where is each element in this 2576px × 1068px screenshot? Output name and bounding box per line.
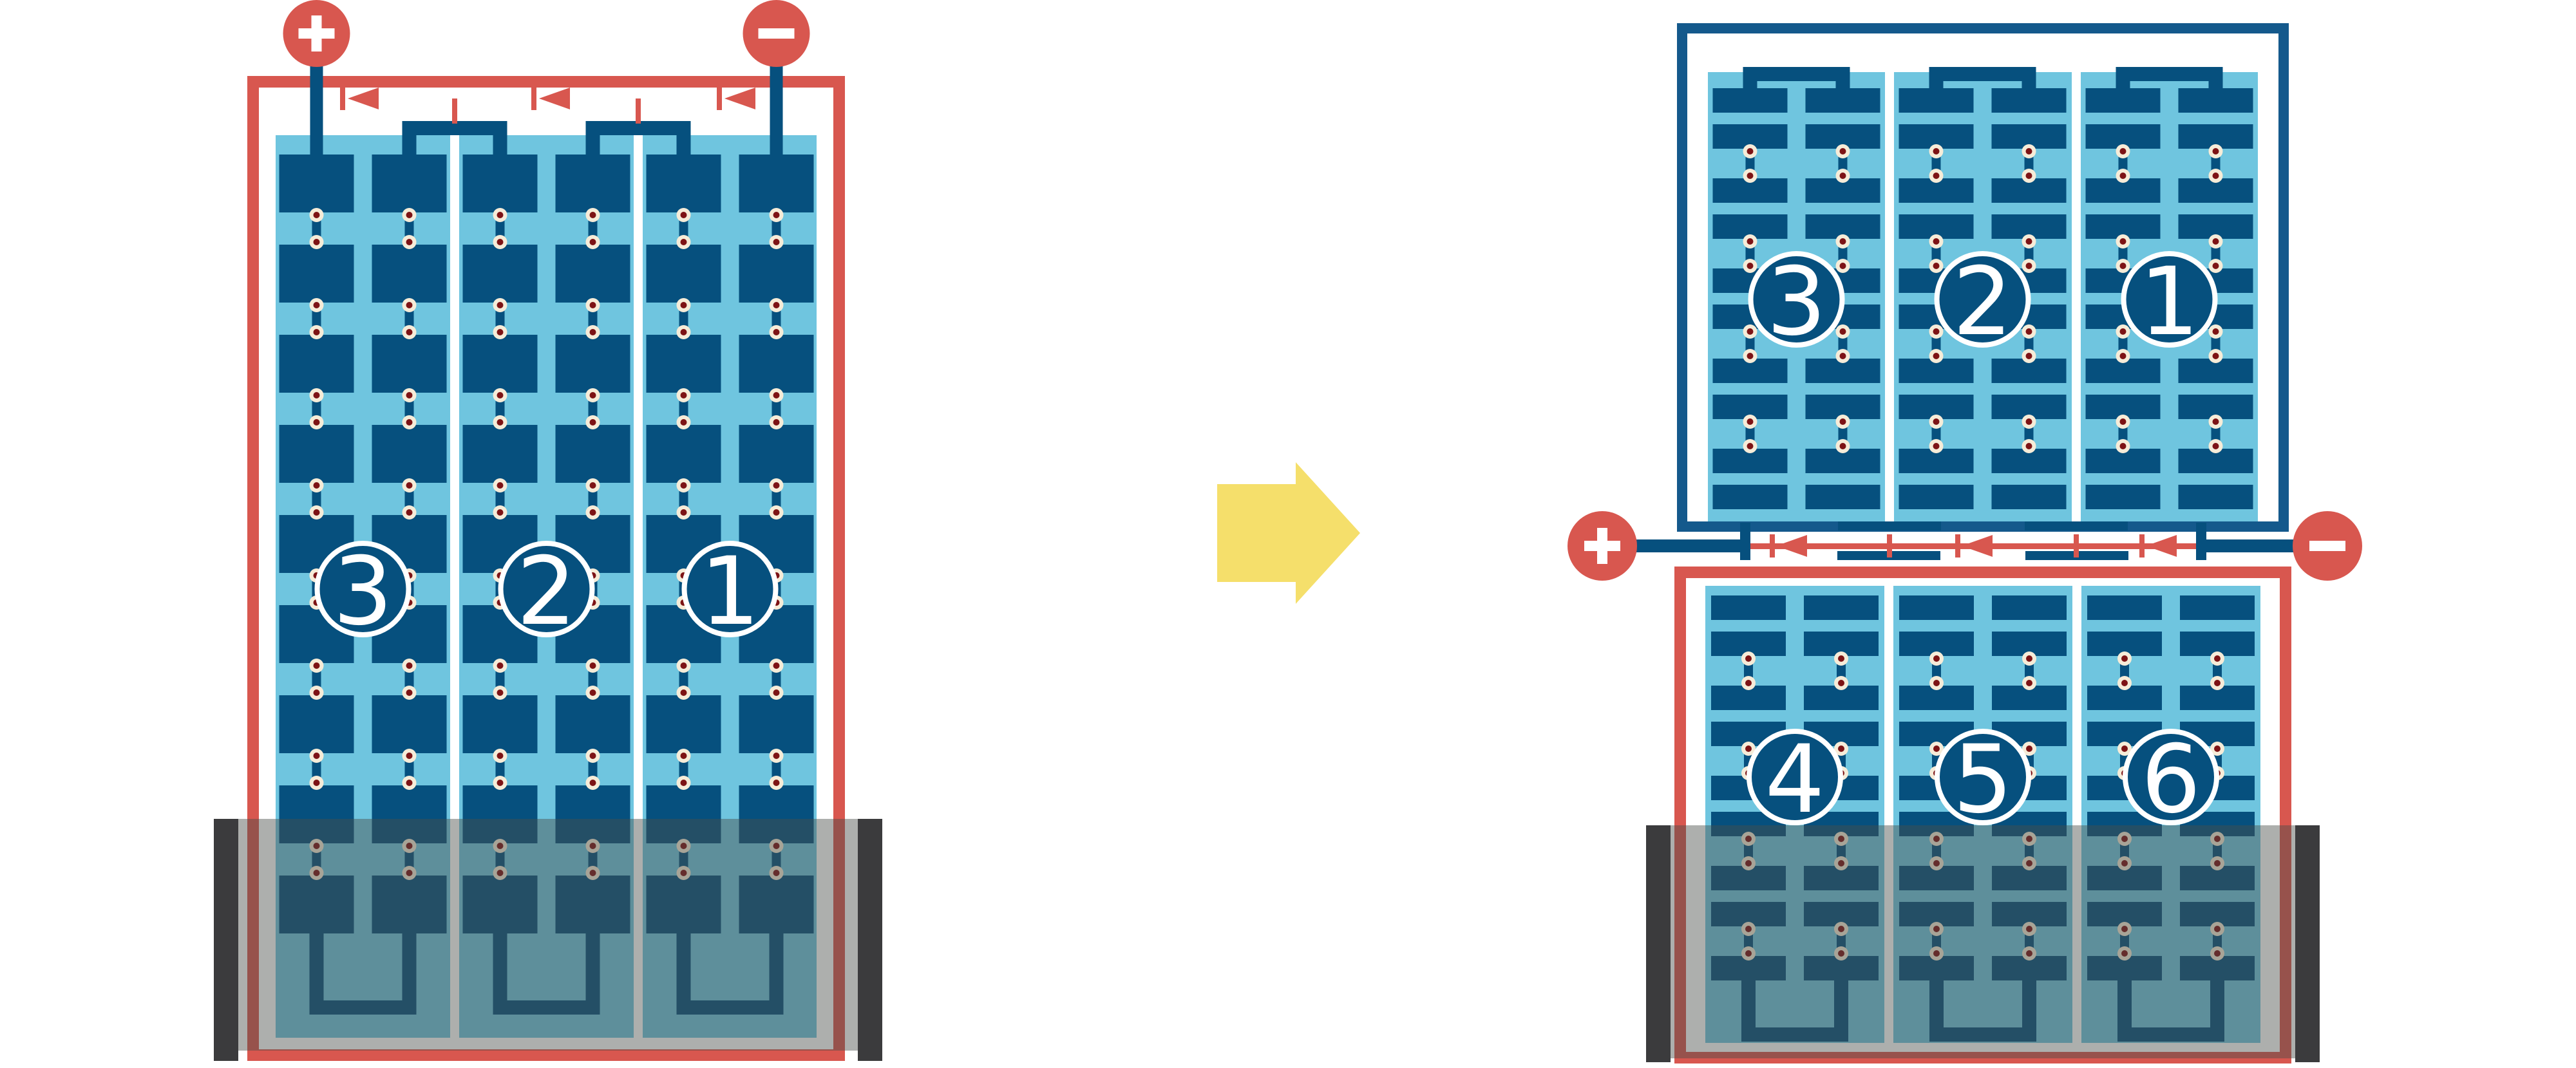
series-link-leg <box>2209 67 2223 93</box>
current-stub <box>452 98 457 124</box>
cell-connector-dot-core <box>1840 328 1846 335</box>
series-link-leg <box>586 121 600 161</box>
cell-connector-dot-core <box>1840 353 1846 359</box>
diagram-canvas: 321 321 456 <box>0 0 2576 1068</box>
cell-connector-dot-core <box>314 662 320 669</box>
pv-cell <box>739 245 814 303</box>
cell-connector-dot-core <box>1933 745 1940 752</box>
series-link-top <box>1743 67 1850 81</box>
cell-connector-dot-core <box>497 780 504 786</box>
cell-connector-dot-core <box>681 212 687 218</box>
page-background: { "palette": { "red": "#D8574F", "cell_n… <box>0 0 2576 1068</box>
pv-cell <box>372 245 447 303</box>
pv-cell <box>463 155 538 212</box>
cell-connector-dot-core <box>1933 148 1940 155</box>
pv-cell <box>556 155 630 212</box>
cell-connector-dot-core <box>2026 418 2032 425</box>
cell-connector-dot-core <box>773 239 780 245</box>
cell-connector-dot-core <box>1933 263 1940 269</box>
current-tick <box>717 87 722 110</box>
cell-connector-dot-core <box>2026 745 2032 752</box>
flood-end-bar <box>2295 825 2320 1062</box>
series-link-leg <box>1836 67 1850 93</box>
pv-cell <box>1713 485 1788 509</box>
pv-cell <box>2087 595 2162 620</box>
cell-connector-dot-core <box>1747 353 1754 359</box>
minus-icon <box>759 28 795 39</box>
flood-overlays <box>214 819 2320 1062</box>
cell-connector-dot-core <box>406 419 413 426</box>
pv-cell <box>1806 485 1880 509</box>
cell-connector-dot-core <box>497 239 504 245</box>
pv-cell <box>647 155 721 212</box>
flood-overlay <box>214 819 882 1051</box>
cell-connector-dot-core <box>497 329 504 335</box>
cell-connector-dot-core <box>2026 655 2032 662</box>
cell-connector-dot-core <box>497 392 504 398</box>
pv-cell <box>1899 485 1974 509</box>
plus-icon <box>1597 528 1607 564</box>
cell-connector-dot-core <box>1933 238 1940 245</box>
current-tick <box>531 87 536 110</box>
cell-connector-dot-core <box>406 509 413 516</box>
panel-number-4: 4 <box>1765 725 1825 834</box>
cell-connector-dot-core <box>497 662 504 669</box>
pv-cell <box>647 695 721 753</box>
cell-connector-dot-core <box>2214 680 2221 686</box>
cell-connector-dot-core <box>590 419 596 426</box>
flood-end-bar <box>1646 825 1671 1062</box>
cell-connector-dot-core <box>773 329 780 335</box>
cell-connector-dot-core <box>406 392 413 398</box>
flood-overlay <box>1646 825 2320 1058</box>
cell-connector-dot-core <box>2214 745 2221 752</box>
current-direction-arrow-icon <box>2146 535 2177 557</box>
cell-connector-dot-core <box>590 302 596 308</box>
cell-connector-dot-core <box>406 780 413 786</box>
cell-connector-dot-core <box>590 482 596 489</box>
current-direction-arrow-icon <box>1776 535 1807 557</box>
column-separator <box>2072 72 2081 521</box>
cell-connector-dot-core <box>590 392 596 398</box>
cell-connector-dot-core <box>1747 173 1754 179</box>
terminal-wire <box>1636 539 1743 552</box>
cell-connector-dot-core <box>1933 353 1940 359</box>
cell-connector-dot-core <box>590 329 596 335</box>
pv-cell <box>647 335 721 393</box>
pv-cell <box>556 335 630 393</box>
pv-cell <box>463 245 538 303</box>
column-separator <box>1885 72 1894 521</box>
current-tick <box>1887 534 1892 557</box>
cell-connector-dot-core <box>681 662 687 669</box>
cell-connector-dot-core <box>1747 418 1754 425</box>
cell-connector-dot-core <box>406 239 413 245</box>
pv-cell <box>2086 485 2161 509</box>
cell-connector-dot-core <box>314 753 320 759</box>
cell-connector-dot-core <box>314 482 320 489</box>
cell-connector-dot-core <box>1933 655 1940 662</box>
current-tick <box>340 87 345 110</box>
cell-connector-dot-core <box>497 482 504 489</box>
pv-cell <box>279 245 354 303</box>
series-link-leg <box>493 121 507 161</box>
cell-connector-dot-core <box>2026 353 2032 359</box>
pv-cell <box>2180 595 2255 620</box>
cell-connector-dot-core <box>590 212 596 218</box>
cell-connector-dot-core <box>1840 263 1846 269</box>
cell-connector-dot-core <box>773 509 780 516</box>
cell-connector-dot-core <box>1747 328 1754 335</box>
cell-connector-dot-core <box>2026 148 2032 155</box>
cell-connector-dot-core <box>497 753 504 759</box>
cell-connector-dot-core <box>2213 443 2219 449</box>
cell-connector-dot-core <box>1747 148 1754 155</box>
current-direction-arrow-icon <box>1962 535 1993 557</box>
cell-connector-dot-core <box>1933 443 1940 449</box>
cell-connector-dot-core <box>497 302 504 308</box>
pv-cell <box>372 335 447 393</box>
cell-connector-dot-core <box>406 689 413 696</box>
pv-cell <box>1804 595 1879 620</box>
pv-cell <box>372 695 447 753</box>
cell-connector-dot-core <box>1838 745 1844 752</box>
cell-connector-dot-core <box>2213 148 2219 155</box>
flood-end-bar <box>214 819 238 1061</box>
cell-connector-dot-core <box>314 419 320 426</box>
cell-connector-dot-core <box>314 780 320 786</box>
transform-arrow-icon <box>1217 462 1360 604</box>
cell-connector-dot-core <box>314 239 320 245</box>
cell-connector-dot-core <box>773 419 780 426</box>
cell-connector-dot-core <box>497 419 504 426</box>
cell-connector-dot-core <box>2026 263 2032 269</box>
pv-cell <box>739 335 814 393</box>
panel-number-5: 5 <box>1953 725 2013 834</box>
pv-cell <box>279 335 354 393</box>
cell-connector-dot-core <box>590 780 596 786</box>
cell-connector-dot-core <box>406 662 413 669</box>
cell-connector-dot-core <box>2120 443 2126 449</box>
cell-connector-dot-core <box>2026 328 2032 335</box>
cell-connector-dot-core <box>681 302 687 308</box>
minus-icon <box>2309 541 2345 551</box>
transform-arrow <box>1217 462 1360 604</box>
pv-cell <box>2179 485 2253 509</box>
cell-connector-dot-core <box>2213 238 2219 245</box>
cell-connector-dot-core <box>2213 418 2219 425</box>
cell-connector-dot-core <box>681 780 687 786</box>
series-link-top <box>1929 67 2036 81</box>
pv-cell <box>1899 595 1974 620</box>
cell-connector-dot-core <box>681 419 687 426</box>
cell-connector-dot-core <box>2120 418 2126 425</box>
pv-cell <box>556 245 630 303</box>
cell-connector-dot-core <box>773 212 780 218</box>
cell-connector-dot-core <box>1747 443 1754 449</box>
pv-cell <box>463 335 538 393</box>
cell-connector-dot-core <box>314 509 320 516</box>
pv-cell <box>1992 485 2067 509</box>
cell-connector-dot-core <box>497 509 504 516</box>
current-tick <box>1770 534 1775 557</box>
cell-connector-dot-core <box>590 753 596 759</box>
cell-connector-dot-core <box>590 662 596 669</box>
cell-connector-dot-core <box>1840 418 1846 425</box>
cell-connector-dot-core <box>314 212 320 218</box>
terminal-wire <box>2204 539 2294 552</box>
cell-connector-dot-core <box>2120 238 2126 245</box>
cell-connector-dot-core <box>2120 173 2126 179</box>
pv-cell <box>463 695 538 753</box>
pv-cell <box>372 155 447 212</box>
series-link-leg <box>677 121 691 161</box>
cell-connector-dot-core <box>773 662 780 669</box>
cell-connector-dot-core <box>406 753 413 759</box>
cell-connector-dot-core <box>314 392 320 398</box>
cell-connector-dot-core <box>1747 238 1754 245</box>
series-link-leg <box>2022 67 2036 93</box>
cell-connector-dot-core <box>1745 745 1752 752</box>
cell-connector-dot-core <box>2026 443 2032 449</box>
cell-connector-dot-core <box>406 329 413 335</box>
pv-cell <box>279 695 354 753</box>
series-link-leg <box>2116 67 2130 93</box>
cell-connector-dot-core <box>1933 680 1940 686</box>
cell-connector-dot-core <box>2120 328 2126 335</box>
pv-cell <box>556 425 630 483</box>
cell-connector-dot-core <box>2213 173 2219 179</box>
cell-connector-dot-core <box>1933 418 1940 425</box>
cell-connector-dot-core <box>681 689 687 696</box>
pv-cell <box>1711 595 1786 620</box>
cell-connector-dot-core <box>1840 238 1846 245</box>
pv-cell <box>647 425 721 483</box>
current-tick <box>1955 534 1960 557</box>
cell-connector-dot-core <box>1840 148 1846 155</box>
cell-connector-dot-core <box>590 689 596 696</box>
cell-connector-dot-core <box>681 753 687 759</box>
series-link-leg <box>1743 67 1757 93</box>
cell-connector-dot-core <box>2213 353 2219 359</box>
cell-connector-dot-core <box>497 689 504 696</box>
series-link-leg <box>402 121 417 161</box>
cell-connector-dot-core <box>2026 173 2032 179</box>
pv-cell <box>647 245 721 303</box>
cell-connector-dot-core <box>497 212 504 218</box>
cell-connector-dot-core <box>2213 263 2219 269</box>
plus-icon <box>312 15 322 52</box>
flood-end-bar <box>858 819 882 1061</box>
cell-connector-dot-core <box>1745 680 1752 686</box>
pv-cell <box>739 695 814 753</box>
cell-connector-dot-core <box>406 482 413 489</box>
panel-number-1: 1 <box>700 537 760 646</box>
series-link-tab <box>2025 521 2128 530</box>
pv-cell <box>463 425 538 483</box>
series-link-leg <box>1929 67 1944 93</box>
cell-connector-dot-core <box>1838 680 1844 686</box>
cell-connector-dot-core <box>2120 353 2126 359</box>
series-link-top <box>2116 67 2223 81</box>
cell-connector-dot-core <box>681 482 687 489</box>
cell-connector-dot-core <box>2120 148 2126 155</box>
cell-connector-dot-core <box>2121 680 2128 686</box>
current-tick <box>2074 534 2079 557</box>
cell-connector-dot-core <box>1840 173 1846 179</box>
current-tick <box>2139 534 2145 557</box>
cell-connector-dot-core <box>1745 655 1752 662</box>
series-link-tab <box>1838 521 1941 530</box>
cell-connector-dot-core <box>590 509 596 516</box>
panel-number-2: 2 <box>1953 247 2012 357</box>
cell-connector-dot-core <box>681 329 687 335</box>
cell-connector-dot-core <box>314 329 320 335</box>
cell-connector-dot-core <box>773 392 780 398</box>
cell-connector-dot-core <box>2121 745 2128 752</box>
panel-number-3: 3 <box>1766 247 1826 357</box>
cell-connector-dot-core <box>314 689 320 696</box>
panel-number-1: 1 <box>2139 247 2199 357</box>
panel-number-6: 6 <box>2141 725 2201 834</box>
cell-connector-dot-core <box>2120 263 2126 269</box>
cell-connector-dot-core <box>773 482 780 489</box>
cell-connector-dot-core <box>1933 173 1940 179</box>
cell-connector-dot-core <box>1840 443 1846 449</box>
panel-number-2: 2 <box>516 537 576 646</box>
pv-cell <box>1992 595 2067 620</box>
panel-number-3: 3 <box>333 537 393 646</box>
cell-connector-dot-core <box>1747 263 1754 269</box>
cell-connector-dot-core <box>406 212 413 218</box>
cell-connector-dot-core <box>406 302 413 308</box>
cell-connector-dot-core <box>773 780 780 786</box>
pv-cell <box>556 695 630 753</box>
cell-connector-dot-core <box>681 509 687 516</box>
right-top-module: 321 <box>1677 23 2289 532</box>
cell-connector-dot-core <box>1933 328 1940 335</box>
cell-connector-dot-core <box>1838 655 1844 662</box>
cell-connector-dot-core <box>681 392 687 398</box>
cell-connector-dot-core <box>2121 655 2128 662</box>
cell-connector-dot-core <box>773 689 780 696</box>
cell-connector-dot-core <box>2026 680 2032 686</box>
cell-connector-dot-core <box>2213 328 2219 335</box>
cell-connector-dot-core <box>773 753 780 759</box>
current-stub <box>636 98 641 124</box>
cell-connector-dot-core <box>681 239 687 245</box>
pv-cell <box>279 425 354 483</box>
pv-cell <box>739 425 814 483</box>
pv-cell <box>372 425 447 483</box>
cell-connector-dot-core <box>2026 238 2032 245</box>
cell-connector-dot-core <box>314 302 320 308</box>
cell-connector-dot-core <box>773 302 780 308</box>
cell-connector-dot-core <box>2214 655 2221 662</box>
cell-connector-dot-core <box>590 239 596 245</box>
